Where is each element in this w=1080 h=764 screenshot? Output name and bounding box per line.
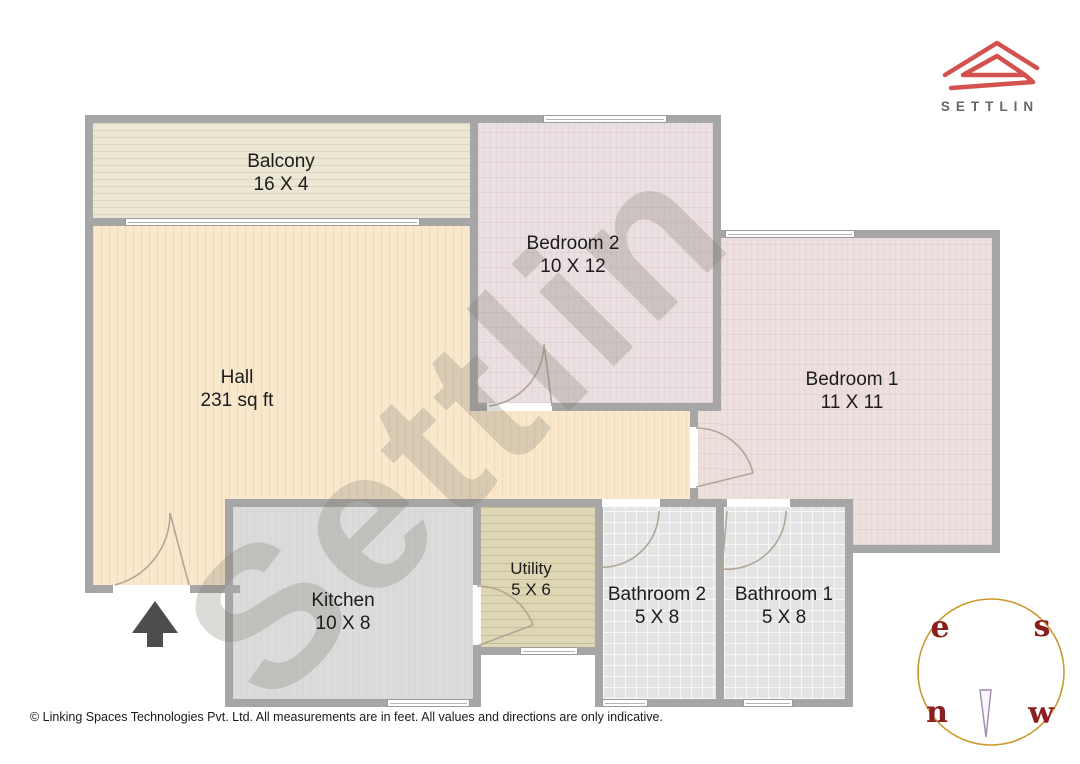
room-dims: 5 X 8 xyxy=(587,606,727,629)
room-name: Kitchen xyxy=(253,589,433,612)
wall-bedroom1-right xyxy=(992,230,1000,553)
room-label-bedroom2: Bedroom 2 10 X 12 xyxy=(483,232,663,278)
balcony-sliding-door xyxy=(125,218,420,226)
room-label-balcony: Balcony 16 X 4 xyxy=(191,150,371,196)
bedroom1-door-opening xyxy=(690,427,698,488)
wall-bedroom1-bottom xyxy=(845,545,1000,553)
room-name: Bedroom 2 xyxy=(483,232,663,255)
room-label-hall: Hall 231 sq ft xyxy=(147,366,327,412)
room-label-bathroom2: Bathroom 2 5 X 8 xyxy=(587,583,727,629)
kitchen-window xyxy=(387,699,470,707)
room-name: Bathroom 2 xyxy=(587,583,727,606)
bedroom1-floor-notch xyxy=(698,411,721,499)
room-dims: 10 X 12 xyxy=(483,255,663,278)
room-dims: 231 sq ft xyxy=(147,389,327,412)
compass-south-label: s xyxy=(1034,609,1051,644)
room-dims: 16 X 4 xyxy=(191,173,371,196)
wall-outer-left xyxy=(85,115,93,593)
room-name: Balcony xyxy=(191,150,371,173)
compass-rose: e s n w xyxy=(908,590,1076,762)
room-label-utility: Utility 5 X 6 xyxy=(471,558,591,600)
bedroom2-door-opening xyxy=(487,403,552,411)
wall-bedroom2-right xyxy=(713,115,721,411)
compass-needle-icon xyxy=(980,690,991,737)
room-name: Bedroom 1 xyxy=(762,368,942,391)
bathroom1-door-opening xyxy=(727,499,790,507)
compass-east-label: e xyxy=(930,610,949,645)
bedroom1-window xyxy=(725,230,855,238)
room-name: Utility xyxy=(471,558,591,579)
room-dims: 5 X 8 xyxy=(714,606,854,629)
room-dims: 11 X 11 xyxy=(762,391,942,414)
passage-floor xyxy=(470,411,690,499)
footer-disclaimer: © Linking Spaces Technologies Pvt. Ltd. … xyxy=(30,710,663,724)
room-name: Bathroom 1 xyxy=(714,583,854,606)
bathroom2-door-opening xyxy=(602,499,660,507)
wall-kitchen-left xyxy=(225,499,233,707)
utility-window xyxy=(520,647,578,655)
wall-bedroom2-left xyxy=(470,115,478,403)
settlin-house-icon xyxy=(935,30,1045,92)
room-name: Hall xyxy=(147,366,327,389)
bedroom2-window xyxy=(543,115,667,123)
room-dims: 10 X 8 xyxy=(253,612,433,635)
bathroom1-window xyxy=(743,699,793,707)
room-dims: 5 X 6 xyxy=(471,579,591,600)
compass-north-label: n xyxy=(926,695,948,730)
compass-west-label: w xyxy=(1027,696,1055,731)
settlin-logo: SETTLIN xyxy=(920,30,1060,114)
bathroom2-window xyxy=(602,699,648,707)
wall-kitchen-top xyxy=(225,499,481,507)
room-label-kitchen: Kitchen 10 X 8 xyxy=(253,589,433,635)
logo-brand-text: SETTLIN xyxy=(920,99,1060,114)
entrance-arrow-icon xyxy=(132,601,178,647)
room-label-bathroom1: Bathroom 1 5 X 8 xyxy=(714,583,854,629)
entrance-opening xyxy=(113,585,190,593)
room-label-bedroom1: Bedroom 1 11 X 11 xyxy=(762,368,942,414)
